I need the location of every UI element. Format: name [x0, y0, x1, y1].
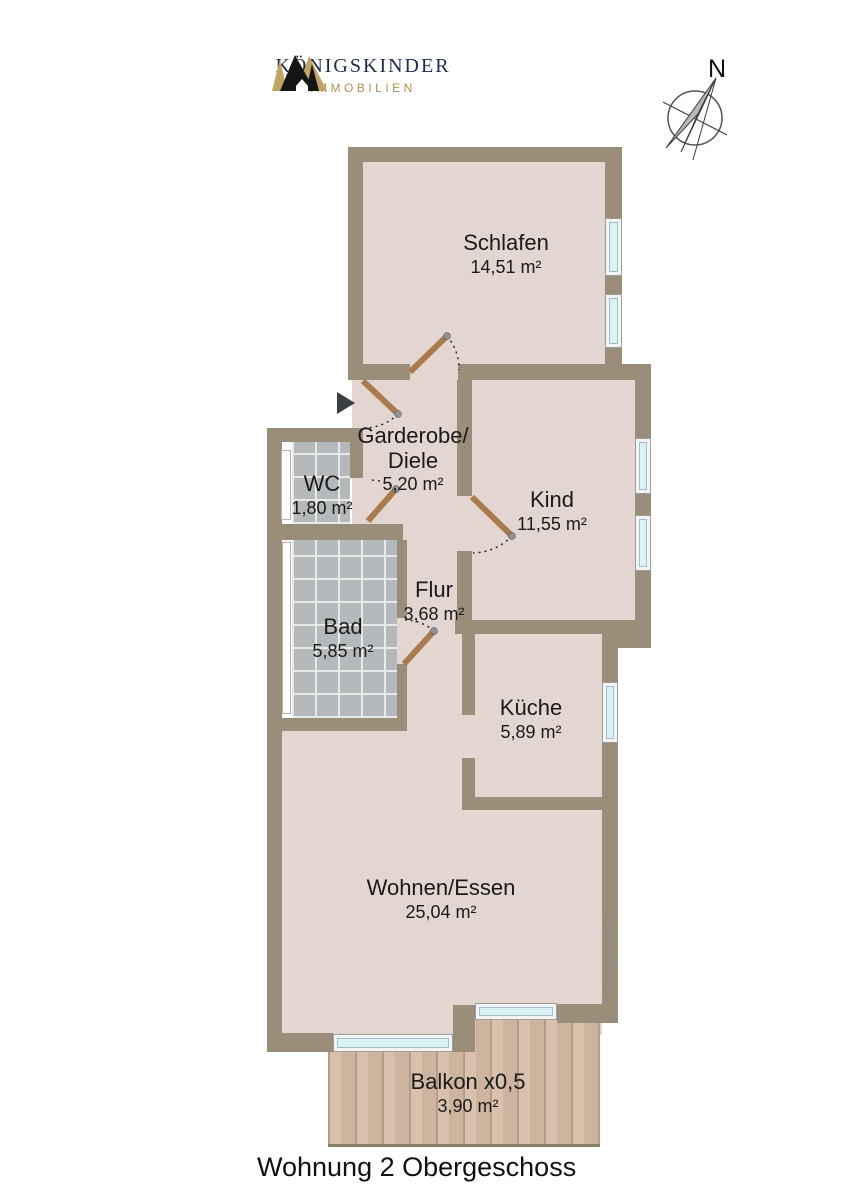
crown-icon [271, 55, 329, 92]
wall [462, 634, 475, 715]
room-label-bad: Bad 5,85 m² [312, 615, 373, 662]
wall [267, 1033, 333, 1052]
room-area: 3,90 m² [411, 1095, 526, 1118]
window [333, 1034, 453, 1052]
room-label-schlafen: Schlafen 14,51 m² [463, 231, 549, 278]
wall [267, 524, 403, 540]
room-area: 14,51 m² [463, 256, 549, 279]
room-area: 11,55 m² [517, 513, 587, 536]
wall [462, 797, 618, 810]
balcony-door-window [475, 1003, 557, 1020]
wall [602, 634, 651, 648]
wall [267, 428, 363, 442]
room-label-kind: Kind 11,55 m² [517, 488, 587, 535]
room-area: 3,68 m² [403, 603, 464, 626]
window-glass [609, 298, 618, 344]
window-glass [606, 686, 614, 739]
wall [458, 364, 651, 380]
window-glass [479, 1007, 553, 1016]
window [635, 438, 651, 494]
room-name: WC [291, 472, 352, 497]
floor-plan-page: KÖNIGSKINDER IMMOBILIEN N [0, 0, 848, 1200]
wall [605, 162, 622, 220]
window [602, 682, 618, 743]
room-name: Bad [312, 615, 373, 640]
balkon-edge [328, 1144, 600, 1147]
room-label-garderobe: Garderobe/ Diele 5,20 m² [357, 424, 468, 496]
window [282, 542, 291, 714]
room-label-wc: WC 1,80 m² [291, 472, 352, 519]
wall [348, 162, 363, 378]
compass-north-label: N [708, 55, 726, 83]
compass-icon: N [650, 48, 750, 173]
window-glass [337, 1038, 449, 1048]
wall [267, 442, 282, 1033]
room-name: Wohnen/Essen [367, 876, 516, 901]
room-name: Kind [517, 488, 587, 513]
window-glass [639, 442, 647, 490]
window [635, 515, 651, 571]
wall [348, 147, 622, 162]
room-name: Schlafen [463, 231, 549, 256]
window [605, 294, 622, 348]
room-area: 1,80 m² [291, 497, 352, 520]
room-label-kueche: Küche 5,89 m² [500, 696, 562, 743]
room-area: 5,20 m² [357, 473, 468, 496]
wall [348, 364, 410, 380]
wall [455, 620, 651, 634]
room-area: 5,89 m² [500, 721, 562, 744]
plan-caption: Wohnung 2 Obergeschoss [257, 1152, 576, 1183]
window-glass [609, 222, 618, 272]
room-area: 5,85 m² [312, 640, 373, 663]
wall [557, 1004, 602, 1023]
wall [635, 380, 651, 438]
room-name: Balkon x0,5 [411, 1070, 526, 1095]
window [605, 218, 622, 276]
wall [453, 1005, 475, 1052]
watermark: Immogrundriss [602, 920, 618, 994]
room-name: Küche [500, 696, 562, 721]
wall [605, 276, 622, 294]
room-name: Flur [403, 578, 464, 603]
room-label-flur: Flur 3,68 m² [403, 578, 464, 625]
window-glass [639, 519, 647, 567]
wall [635, 494, 651, 515]
room-name: Diele [357, 449, 468, 474]
window [281, 450, 291, 520]
wall [397, 664, 407, 718]
brand-logo: KÖNIGSKINDER IMMOBILIEN [271, 55, 455, 95]
room-area: 25,04 m² [367, 901, 516, 924]
wall [267, 718, 407, 731]
room-label-balkon: Balkon x0,5 3,90 m² [411, 1070, 526, 1117]
room-label-wohnen: Wohnen/Essen 25,04 m² [367, 876, 516, 923]
room-name: Garderobe/ [357, 424, 468, 449]
